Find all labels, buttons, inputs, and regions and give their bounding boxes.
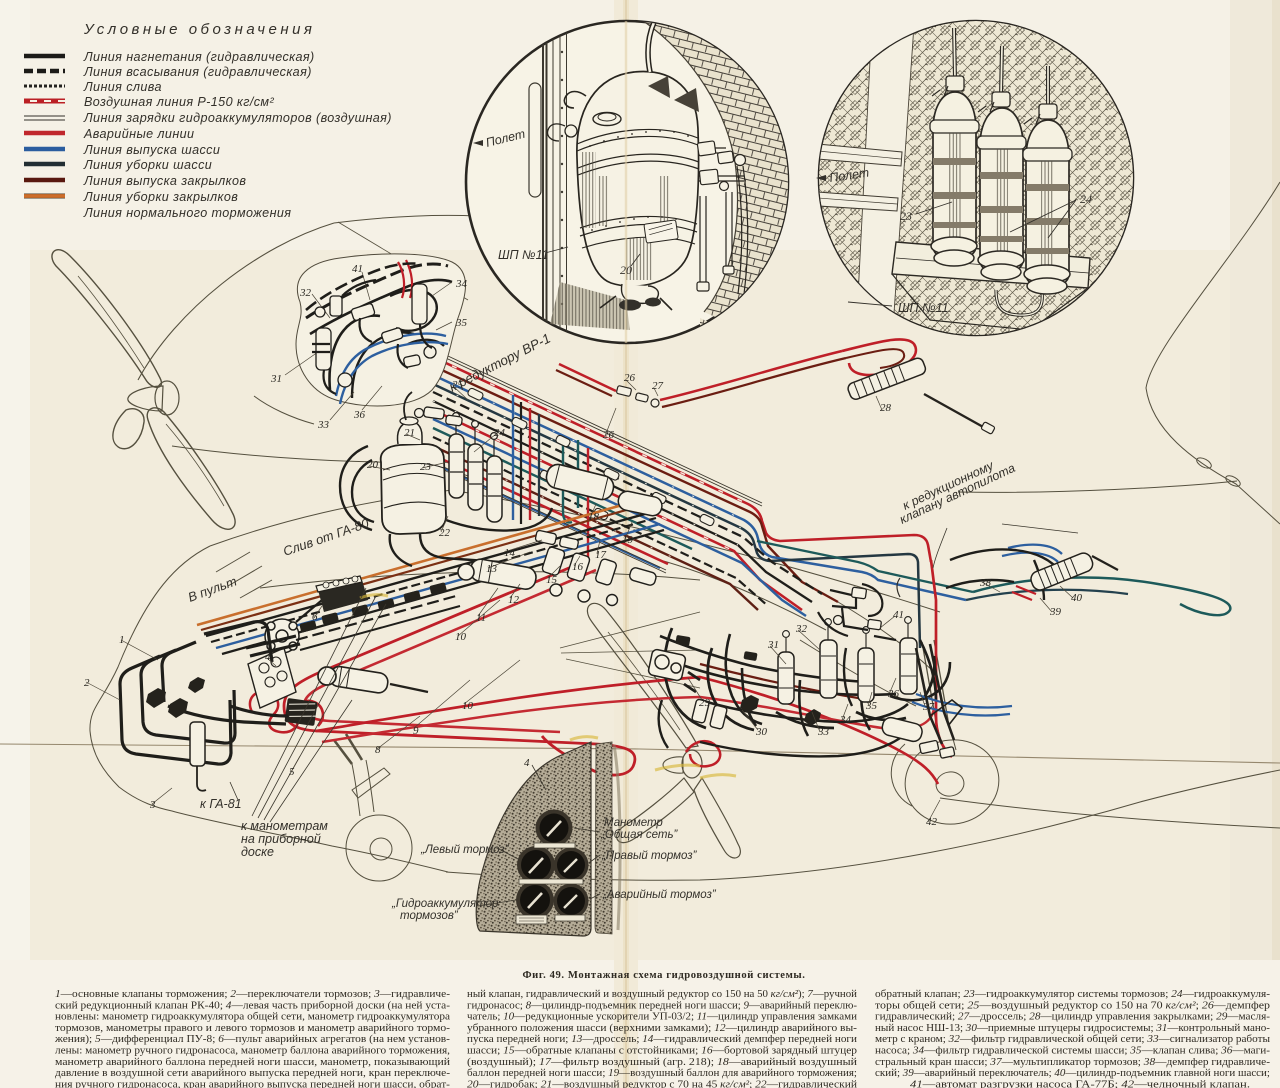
svg-text:ный клапан, гидравлический и в: ный клапан, гидравлический и воздушный р… — [467, 989, 858, 1000]
svg-text:18: 18 — [588, 511, 600, 523]
svg-text:новлены: манометр гидроаккумул: новлены: манометр гидроаккумулятора обще… — [55, 1012, 450, 1023]
svg-text:40: 40 — [1071, 592, 1083, 604]
svg-text:Линия слива: Линия слива — [83, 80, 162, 94]
svg-text:метр с краном; 32—фильтр гидра: метр с краном; 32—фильтр гидравлической … — [875, 1034, 1270, 1045]
svg-text:37: 37 — [922, 701, 935, 713]
svg-text:20—гидробак; 21—воздушный реду: 20—гидробак; 21—воздушный редуктор с 70 … — [467, 1079, 858, 1088]
svg-text:„Гидроаккумулятор: „Гидроаккумулятор — [391, 898, 499, 910]
svg-text:к манометрам: к манометрам — [241, 819, 328, 833]
svg-text:насоса; 34—фильтр гидравлическ: насоса; 34—фильтр гидравлической системы… — [875, 1046, 1271, 1057]
svg-text:35: 35 — [865, 700, 878, 712]
svg-text:„Общая сеть”: „Общая сеть” — [600, 829, 679, 841]
svg-text:24: 24 — [494, 427, 506, 439]
svg-text:9: 9 — [413, 725, 419, 737]
svg-text:38: 38 — [979, 577, 992, 589]
svg-text:доске: доске — [241, 845, 274, 859]
svg-text:41: 41 — [893, 609, 904, 621]
svg-text:ШП №11: ШП №11 — [898, 301, 949, 315]
svg-text:ский; 39—аварийный переключате: ский; 39—аварийный переключатель; 40—цил… — [875, 1068, 1270, 1079]
svg-text:Линия уборки шасси: Линия уборки шасси — [83, 158, 212, 172]
svg-text:35: 35 — [455, 317, 468, 329]
svg-text:гидронасос; 8—цилиндр-подъемни: гидронасос; 8—цилиндр-подъемник передней… — [467, 1000, 858, 1011]
svg-text:32: 32 — [795, 623, 808, 635]
svg-text:12: 12 — [508, 594, 520, 606]
svg-text:торы общей сети; 25—воздушный: торы общей сети; 25—воздушный редуктор с… — [875, 1000, 1270, 1011]
svg-text:22: 22 — [439, 527, 451, 539]
svg-text:жения); 5—дифференциал ПУ-8; 6: жения); 5—дифференциал ПУ-8; 6—пульт ава… — [54, 1034, 451, 1045]
svg-text:гидравлический; 27—дроссель; 2: гидравлический; 27—дроссель; 28—цилиндр … — [875, 1012, 1271, 1023]
svg-text:1—основные клапаны торможения;: 1—основные клапаны торможения; 2—переклю… — [55, 989, 451, 1000]
svg-text:13: 13 — [486, 563, 498, 575]
svg-text:чатель; 10—редукционные ускори: чатель; 10—редукционные ускорители УП-03… — [467, 1012, 858, 1023]
svg-text:убранного положения шасси (вер: убранного положения шасси (верхними замк… — [467, 1023, 858, 1034]
svg-text:Воздушная линия Р-150 кг/см: Воздушная линия Р-150 кг/см² — [84, 95, 274, 109]
svg-text:6: 6 — [312, 611, 318, 623]
svg-text:42: 42 — [926, 816, 938, 828]
svg-text:на приборной: на приборной — [241, 832, 321, 846]
svg-text:ния ручного гидронасоса, кран: ния ручного гидронасоса, кран аварийного… — [55, 1079, 451, 1088]
svg-text:Линия всасывания (гидравличес: Линия всасывания (гидравлическая) — [83, 65, 312, 79]
svg-text:14: 14 — [504, 547, 516, 559]
svg-text:34: 34 — [455, 278, 468, 290]
svg-text:(воздушный); 17—фильтр воздушн: (воздушный); 17—фильтр воздушный (агр. 2… — [467, 1057, 858, 1068]
svg-text:Линия выпуска шасси: Линия выпуска шасси — [83, 143, 220, 157]
svg-text:Фиг. 49. Монтажная схема ги: Фиг. 49. Монтажная схема гидровоздушной … — [522, 970, 805, 981]
svg-text:Линия зарядки гидроаккумулят: Линия зарядки гидроаккумуляторов (воздуш… — [83, 111, 392, 125]
svg-text:10: 10 — [455, 631, 467, 643]
svg-text:ШП №11: ШП №11 — [498, 248, 549, 262]
svg-text:23: 23 — [420, 461, 432, 473]
svg-text:26: 26 — [624, 372, 636, 384]
svg-text:5: 5 — [289, 766, 295, 778]
svg-text:давление в воздушной сети авар: давление в воздушной сети аварийного вып… — [55, 1068, 451, 1079]
svg-text:„Правый тормоз”: „Правый тормоз” — [601, 850, 698, 862]
svg-text:Линия нагнетания (гидравличес: Линия нагнетания (гидравлическая) — [83, 50, 315, 64]
svg-text:29: 29 — [699, 697, 711, 709]
svg-text:17: 17 — [595, 549, 607, 561]
svg-text:33: 33 — [317, 419, 330, 431]
svg-text:36: 36 — [887, 688, 900, 700]
svg-text:31: 31 — [767, 639, 779, 651]
svg-text:36: 36 — [353, 409, 366, 421]
svg-text:обратный клапан; 23—гидроаккум: обратный клапан; 23—гидроаккумулятор сис… — [875, 989, 1271, 1000]
svg-text:30: 30 — [755, 726, 768, 738]
svg-text:39: 39 — [1049, 606, 1062, 618]
svg-text:1: 1 — [119, 634, 125, 646]
svg-text:Линия нормального торможения: Линия нормального торможения — [83, 206, 291, 220]
svg-text:8: 8 — [375, 744, 381, 756]
svg-text:Условные обозначения: Условные обозначения — [83, 21, 315, 38]
svg-text:к ГА-81: к ГА-81 — [200, 797, 242, 811]
svg-text:Манометр: Манометр — [604, 817, 663, 829]
svg-text:24: 24 — [1080, 192, 1092, 206]
svg-text:тормозов, манометры правого и: тормозов, манометры правого и левого тор… — [55, 1023, 451, 1034]
svg-text:41: 41 — [352, 263, 363, 275]
svg-text:19: 19 — [622, 534, 634, 546]
svg-text:27: 27 — [652, 380, 664, 392]
svg-text:32: 32 — [299, 287, 312, 299]
svg-text:тормозов”: тормозов” — [400, 910, 459, 922]
svg-text:33: 33 — [817, 726, 830, 738]
svg-text:28: 28 — [880, 402, 892, 414]
svg-text:11: 11 — [476, 612, 486, 624]
svg-text:3: 3 — [149, 799, 156, 811]
svg-text:манометр аварийного баллона пе: манометр аварийного баллона передней ног… — [55, 1057, 451, 1068]
svg-text:16: 16 — [572, 561, 584, 573]
svg-text:4: 4 — [265, 651, 271, 663]
svg-text:Линия выпуска закрылков: Линия выпуска закрылков — [83, 174, 246, 188]
svg-text:20: 20 — [367, 459, 379, 471]
svg-text:„Аварийный тормоз”: „Аварийный тормоз” — [602, 889, 717, 901]
svg-text:ный насос НШ-13; 30—приемные ш: ный насос НШ-13; 30—приемные штуцеры гид… — [875, 1023, 1271, 1034]
svg-text:стральный кран шасси; 37—мульт: стральный кран шасси; 37—мультипликатор … — [875, 1057, 1271, 1068]
svg-text:10: 10 — [462, 700, 474, 712]
svg-text:лены: манометр ручного гидрона: лены: манометр ручного гидронасоса, мано… — [55, 1046, 450, 1057]
svg-text:31: 31 — [270, 373, 282, 385]
svg-text:Аварийные линии: Аварийные линии — [83, 127, 194, 141]
svg-text:21: 21 — [404, 427, 415, 439]
svg-text:20: 20 — [620, 263, 632, 277]
svg-text:23: 23 — [900, 209, 912, 223]
svg-text:пуска передней ноги; 13—дроссе: пуска передней ноги; 13—дроссель; 14—гид… — [467, 1034, 858, 1045]
svg-text:15: 15 — [546, 574, 558, 586]
svg-text:41—автомат разгрузки насоса ГА: 41—автомат разгрузки насоса ГА-77Б; 42—ч… — [910, 1079, 1250, 1088]
svg-text:4: 4 — [524, 757, 530, 769]
svg-text:2: 2 — [84, 677, 90, 689]
svg-text:шасси; 15—обратные клапаны с о: шасси; 15—обратные клапаны с отстойникам… — [467, 1046, 857, 1057]
svg-text:25: 25 — [452, 379, 464, 391]
svg-text:Линия уборки закрылков: Линия уборки закрылков — [83, 190, 238, 204]
svg-text:34: 34 — [839, 714, 852, 726]
svg-text:баллон передней ноги шасси; 19: баллон передней ноги шасси; 19—воздушный… — [467, 1068, 857, 1079]
svg-text:ский редукционный клапан РК-40: ский редукционный клапан РК-40; 4—левая … — [55, 1000, 451, 1011]
svg-text:„Левый тормоз”: „Левый тормоз” — [420, 844, 510, 856]
svg-text:26: 26 — [603, 429, 615, 441]
